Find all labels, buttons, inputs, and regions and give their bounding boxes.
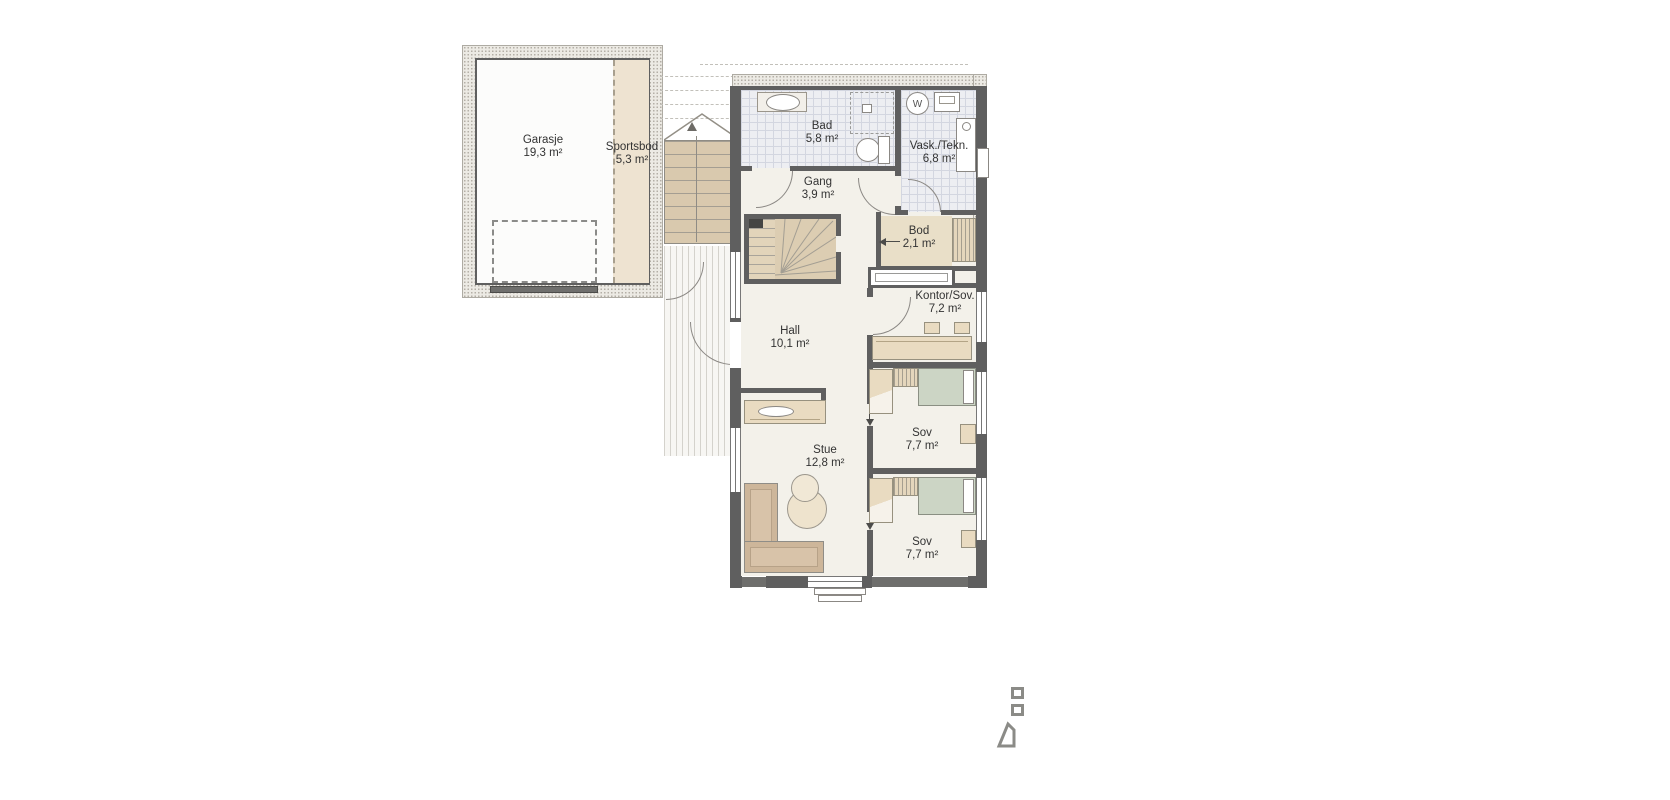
shower-icon — [850, 92, 894, 134]
room-label-gang: Gang 3,9 m² — [788, 176, 848, 202]
room-area: 5,3 m² — [577, 154, 687, 167]
chimney-block — [977, 148, 989, 178]
room-area: 10,1 m² — [760, 338, 820, 351]
window — [730, 252, 741, 318]
water-heater-dial — [962, 122, 971, 131]
room-name: Sportsbod — [577, 141, 687, 154]
wall — [741, 388, 826, 393]
room-name: Sov — [892, 536, 952, 549]
entry-step — [818, 595, 862, 602]
room-area: 2,1 m² — [889, 238, 949, 251]
window — [976, 372, 987, 434]
wardrobe — [869, 369, 893, 414]
room-name: Sov — [892, 427, 952, 440]
toilet-tank-icon — [878, 136, 890, 164]
desk-edge — [876, 341, 968, 342]
stair-gable-lines — [664, 110, 740, 142]
room-label-bad: Bad 5,8 m² — [792, 120, 852, 146]
window — [742, 576, 766, 588]
room-area: 12,8 m² — [795, 457, 855, 470]
garage-parking-outline — [492, 220, 597, 283]
room-name: Stue — [795, 444, 855, 457]
desk — [961, 530, 976, 548]
wall — [836, 252, 841, 284]
room-area: 6,8 m² — [901, 153, 977, 166]
garage-door — [490, 286, 598, 293]
room-area: 3,9 m² — [788, 189, 848, 202]
wall — [941, 210, 976, 215]
stool — [924, 322, 940, 334]
wall — [741, 166, 752, 171]
wardrobe-cabinet-inner — [875, 273, 948, 282]
desk — [960, 424, 976, 444]
sideboard-line — [750, 419, 820, 420]
window — [976, 478, 987, 540]
sofa-cushion — [750, 547, 818, 567]
washer-letter: W — [913, 99, 922, 110]
room-label-sportsbod: Sportsbod 5,3 m² — [577, 141, 687, 167]
wall — [952, 283, 976, 288]
room-area: 7,7 m² — [892, 549, 952, 562]
window — [730, 428, 741, 492]
wall — [744, 279, 841, 284]
room-label-sov-1: Sov 7,7 m² — [892, 427, 952, 453]
stair-up-arrow-icon — [687, 122, 697, 131]
sink-icon — [766, 94, 800, 111]
side-table — [791, 474, 819, 502]
toilet-bowl-icon — [856, 138, 880, 162]
room-name: Vask./Tekn. — [901, 140, 977, 153]
entry-door-opening — [730, 322, 741, 368]
stair-landing — [749, 219, 775, 279]
wall — [873, 468, 976, 474]
stool — [954, 322, 970, 334]
room-area: 5,8 m² — [792, 133, 852, 146]
floor-plan-canvas: W — [0, 0, 1670, 800]
wall — [867, 288, 873, 297]
room-label-stue: Stue 12,8 m² — [795, 444, 855, 470]
drain-icon — [862, 104, 872, 113]
pillow — [963, 370, 974, 404]
interior-winder-stairs — [775, 219, 836, 279]
dresser — [893, 368, 918, 387]
stair-direction-arrow — [879, 238, 886, 246]
entry-step — [814, 588, 866, 595]
roof-overhang-dashline — [700, 64, 968, 65]
closet-bod — [952, 218, 976, 262]
sportsbod-room — [613, 60, 649, 283]
room-label-sov-2: Sov 7,7 m² — [892, 536, 952, 562]
wall — [836, 214, 841, 236]
wall — [867, 530, 873, 576]
room-area: 7,7 m² — [892, 440, 952, 453]
sov1-door-arrow — [866, 419, 874, 426]
desk — [872, 336, 972, 360]
terrace-door — [808, 576, 862, 588]
wall — [895, 210, 908, 215]
roof-overhang-dashline — [660, 76, 744, 77]
window — [872, 576, 968, 588]
dresser — [893, 477, 918, 496]
stair-centerline — [696, 136, 697, 242]
room-area: 7,2 m² — [900, 303, 990, 316]
room-name: Bod — [889, 225, 949, 238]
pillow — [963, 479, 974, 513]
room-label-bod: Bod 2,1 m² — [889, 225, 949, 251]
room-label-hall: Hall 10,1 m² — [760, 325, 820, 351]
sov2-door-arrow — [866, 523, 874, 530]
logo-arrow-icon — [994, 715, 1030, 751]
stair-dark-corner — [749, 219, 763, 228]
sideboard-bowl — [758, 406, 794, 417]
washer-icon: W — [906, 92, 929, 115]
room-label-vask-tekn: Vask./Tekn. 6,8 m² — [901, 140, 977, 166]
wardrobe — [869, 478, 893, 523]
room-name: Kontor/Sov. — [900, 290, 990, 303]
room-name: Gang — [788, 176, 848, 189]
house-top-exterior-wall — [733, 75, 985, 86]
room-label-kontor-sov: Kontor/Sov. 7,2 m² — [900, 290, 990, 316]
room-name: Bad — [792, 120, 852, 133]
room-name: Hall — [760, 325, 820, 338]
logo-square — [1011, 687, 1024, 699]
wall — [790, 166, 901, 171]
dryer-panel — [939, 96, 955, 104]
sofa — [744, 541, 824, 573]
